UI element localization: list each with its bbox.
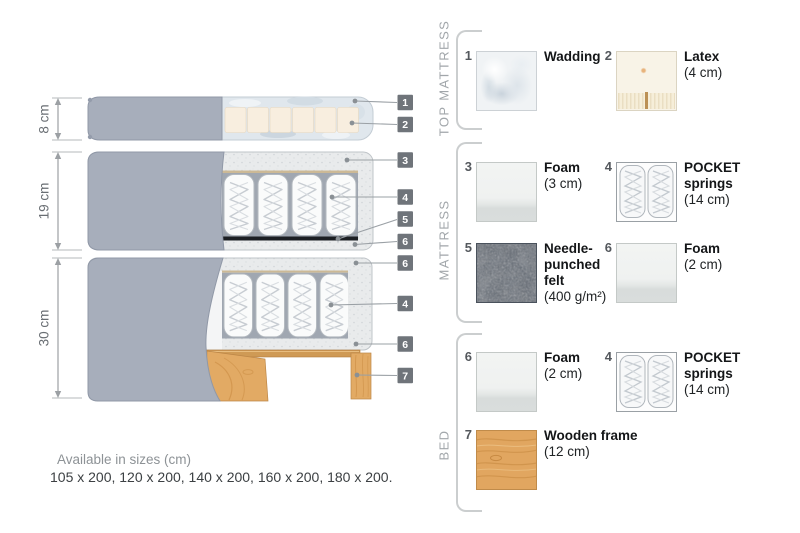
legend-item-detail: (2 cm) bbox=[684, 257, 722, 273]
callout-label: 6 bbox=[402, 339, 408, 351]
callout-label: 6 bbox=[402, 236, 408, 248]
fabric-cover bbox=[88, 97, 222, 140]
legend-item-name: Foam bbox=[684, 241, 722, 257]
callout-label: 2 bbox=[402, 119, 408, 131]
section-title-top-mattress: TOP MATTRESS bbox=[437, 20, 452, 136]
fabric-cover bbox=[88, 258, 223, 401]
callout-label: 3 bbox=[402, 155, 408, 167]
callout-label: 4 bbox=[402, 192, 408, 204]
wooden-frame bbox=[205, 350, 371, 401]
foam-texture-swatch bbox=[476, 162, 537, 222]
legend-item-latex: 2 Latex (4 cm) bbox=[599, 48, 722, 111]
infographic-page: 8 cm 19 cm 30 cm bbox=[0, 0, 800, 533]
legend-item-pocket-springs-bed: 4 POCKET springs (14 cm) bbox=[599, 349, 740, 412]
mattress-drawing bbox=[88, 152, 373, 250]
legend-item-number: 4 bbox=[599, 349, 612, 364]
legend-item-number: 1 bbox=[459, 48, 472, 63]
legend-item-name: Foam bbox=[544, 350, 582, 366]
legend-item-detail: (12 cm) bbox=[544, 444, 638, 460]
callout-label: 6 bbox=[402, 258, 408, 270]
callout-labels: 1 2 3 4 5 6 6 4 6 7 bbox=[398, 95, 414, 384]
legend-item-name: Needle- punched felt bbox=[544, 241, 606, 289]
callout-label: 4 bbox=[402, 298, 408, 310]
fabric-cover bbox=[88, 152, 224, 250]
legend-item-detail: (14 cm) bbox=[684, 192, 740, 208]
legend-item-number: 7 bbox=[459, 427, 472, 442]
legend-item-detail: (14 cm) bbox=[684, 382, 740, 398]
legend-item-foam-3cm: 3 Foam (3 cm) bbox=[459, 159, 582, 222]
callout-label: 7 bbox=[402, 370, 408, 382]
legend-item-number: 4 bbox=[599, 159, 612, 174]
latex-texture-swatch bbox=[616, 51, 677, 111]
legend-item-foam-2cm: 6 Foam (2 cm) bbox=[599, 240, 722, 303]
legend-item-detail: (4 cm) bbox=[684, 65, 722, 81]
dimension-19cm: 19 cm bbox=[37, 152, 82, 250]
dimension-label-30cm: 30 cm bbox=[37, 310, 52, 347]
legend-item-wadding: 1 Wadding bbox=[459, 48, 601, 111]
pocket-springs-swatch bbox=[616, 162, 677, 222]
legend-item-detail: (2 cm) bbox=[544, 366, 582, 382]
top-mattress-drawing bbox=[88, 97, 373, 141]
legend-item-detail: (3 cm) bbox=[544, 176, 582, 192]
legend-item-number: 5 bbox=[459, 240, 472, 255]
callout-label: 1 bbox=[402, 97, 408, 109]
legend-item-name: POCKET springs bbox=[684, 350, 740, 382]
legend-item-wooden-frame: 7 Wooden frame (12 cm) bbox=[459, 427, 638, 490]
section-title-mattress: MATTRESS bbox=[437, 199, 452, 280]
available-sizes-values: 105 x 200, 120 x 200, 140 x 200, 160 x 2… bbox=[50, 469, 393, 485]
available-sizes-label: Available in sizes (cm) bbox=[57, 452, 191, 467]
callout-label: 5 bbox=[402, 214, 408, 226]
dimension-8cm: 8 cm bbox=[37, 98, 82, 140]
legend-item-felt: 5 Needle- punched felt (400 g/m²) bbox=[459, 240, 606, 305]
pocket-springs-swatch bbox=[616, 352, 677, 412]
legend-item-number: 3 bbox=[459, 159, 472, 174]
legend-item-foam-2cm-bed: 6 Foam (2 cm) bbox=[459, 349, 582, 412]
legend-item-name: Wadding bbox=[544, 49, 601, 65]
section-title-bed: BED bbox=[437, 430, 452, 461]
foam-bottom-layer bbox=[222, 241, 373, 251]
legend-item-detail: (400 g/m²) bbox=[544, 289, 606, 305]
legend-item-number: 2 bbox=[599, 48, 612, 63]
dimension-label-19cm: 19 cm bbox=[37, 183, 52, 220]
foam-texture-swatch bbox=[616, 243, 677, 303]
legend-item-number: 6 bbox=[599, 240, 612, 255]
dimension-30cm: 30 cm bbox=[37, 258, 82, 398]
legend-item-name: Wooden frame bbox=[544, 428, 638, 444]
wadding-texture-swatch bbox=[476, 51, 537, 111]
bed-drawing bbox=[88, 258, 372, 401]
felt-texture-swatch bbox=[476, 243, 537, 303]
foam-texture-swatch bbox=[476, 352, 537, 412]
legend-item-name: Foam bbox=[544, 160, 582, 176]
wood-texture-swatch bbox=[476, 430, 537, 490]
legend-item-name: Latex bbox=[684, 49, 722, 65]
legend-item-number: 6 bbox=[459, 349, 472, 364]
legend-item-name: POCKET springs bbox=[684, 160, 740, 192]
dimension-label-8cm: 8 cm bbox=[37, 104, 52, 133]
legend-item-pocket-springs: 4 POCKET springs (14 cm) bbox=[599, 159, 740, 222]
